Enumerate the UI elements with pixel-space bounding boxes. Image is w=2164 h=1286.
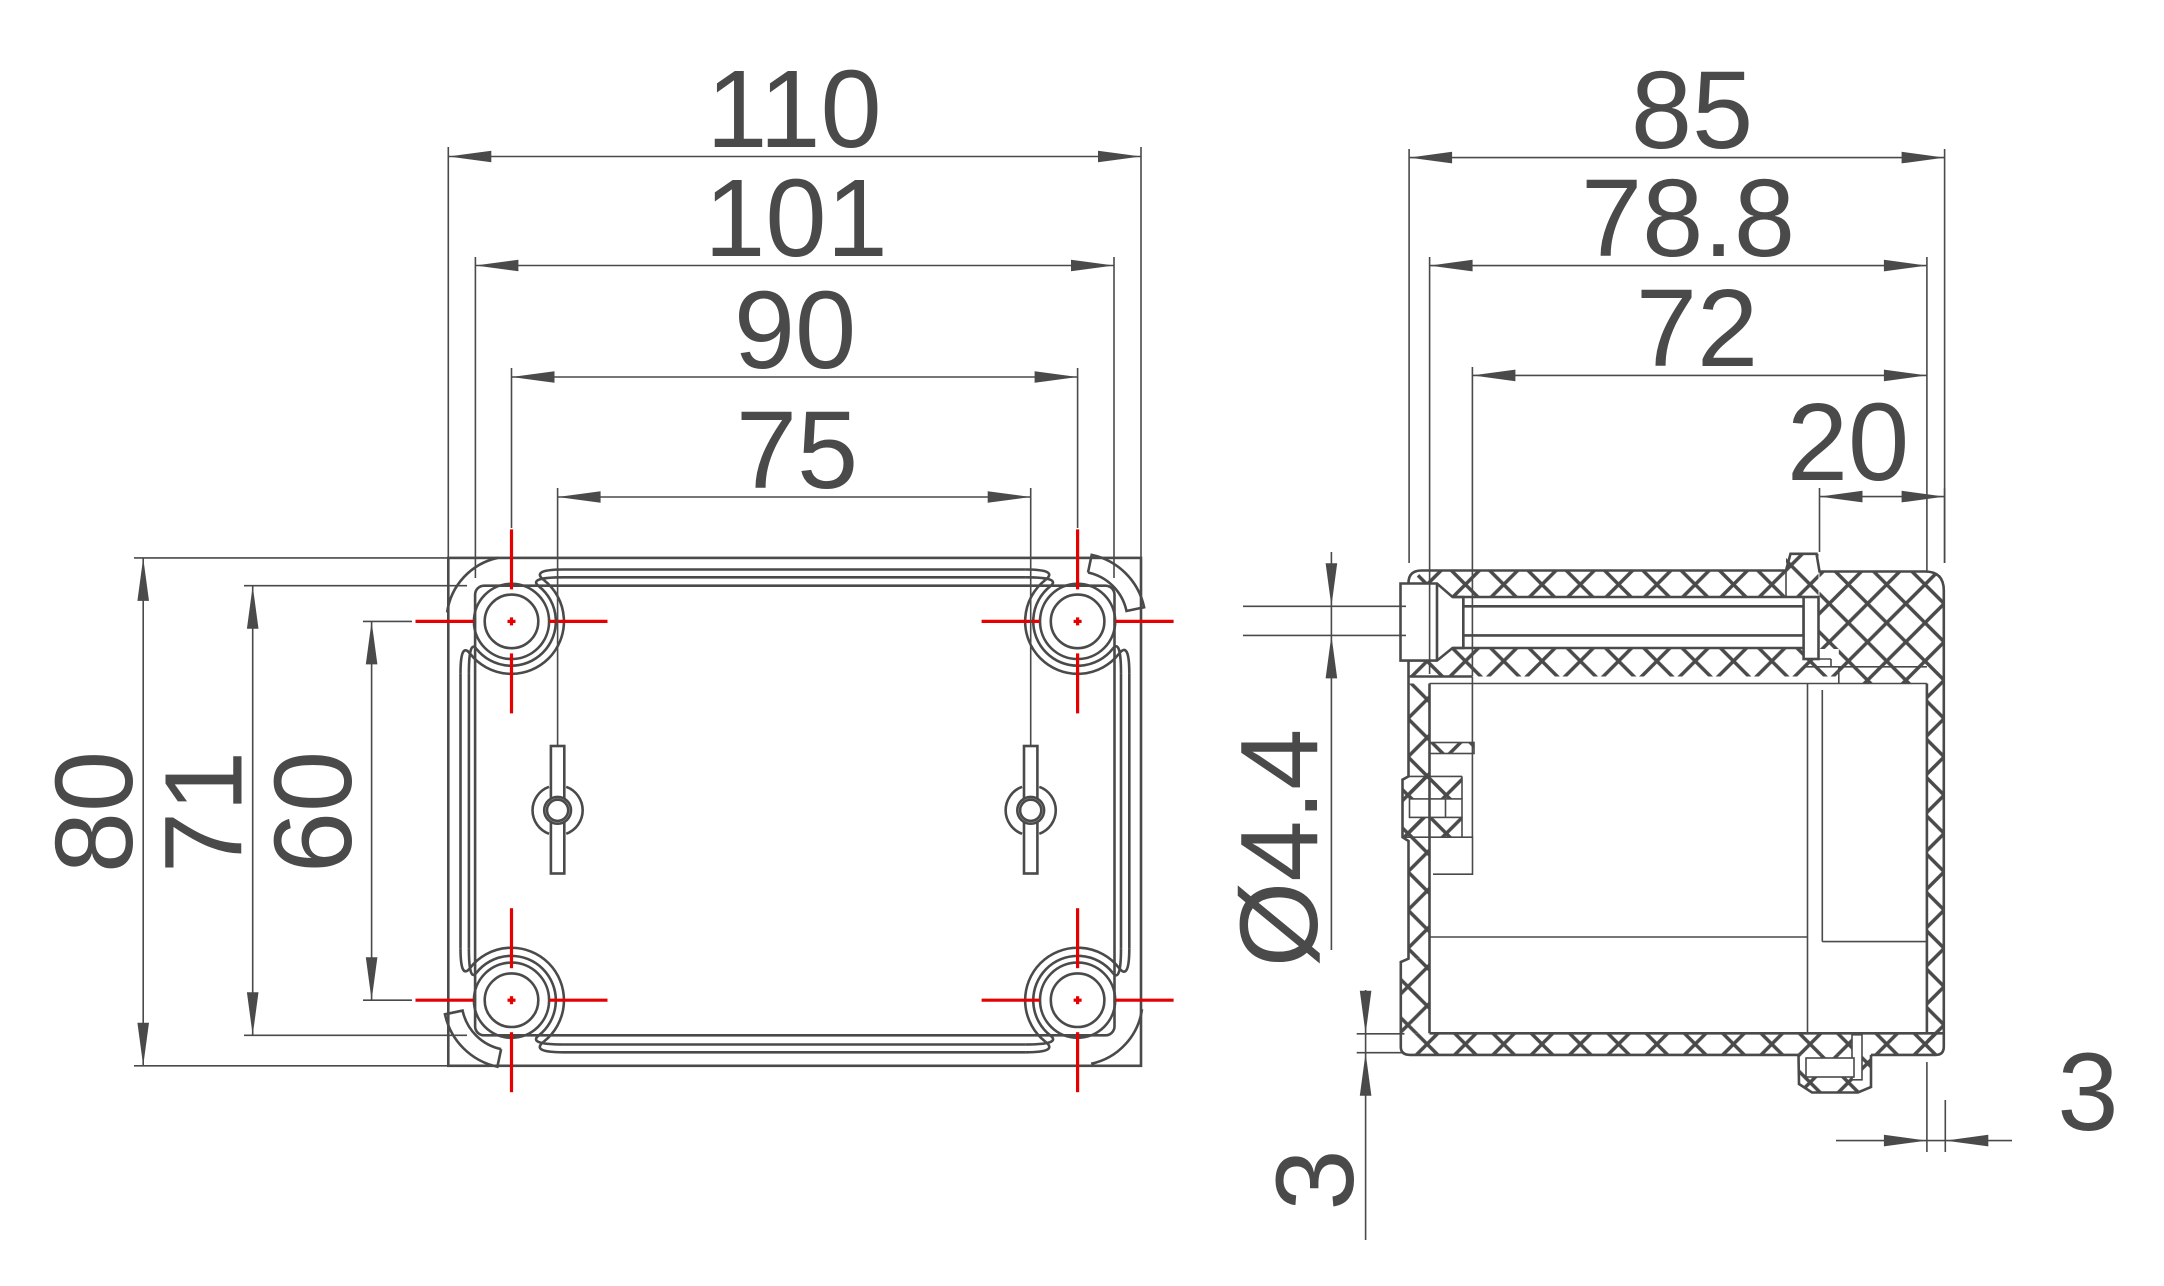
svg-text:72: 72: [1636, 267, 1758, 390]
svg-text:90: 90: [734, 269, 856, 392]
svg-text:71: 71: [143, 751, 266, 873]
svg-text:75: 75: [736, 389, 858, 512]
svg-text:3: 3: [2057, 1031, 2118, 1154]
svg-text:60: 60: [252, 751, 375, 873]
svg-text:80: 80: [33, 751, 156, 873]
svg-text:85: 85: [1631, 49, 1753, 172]
svg-text:20: 20: [1787, 381, 1909, 504]
svg-text:78.8: 78.8: [1581, 157, 1795, 280]
svg-text:3: 3: [1254, 1149, 1377, 1210]
svg-text:101: 101: [704, 157, 888, 280]
svg-text:110: 110: [706, 48, 881, 171]
svg-text:Ø4.4: Ø4.4: [1218, 729, 1341, 967]
